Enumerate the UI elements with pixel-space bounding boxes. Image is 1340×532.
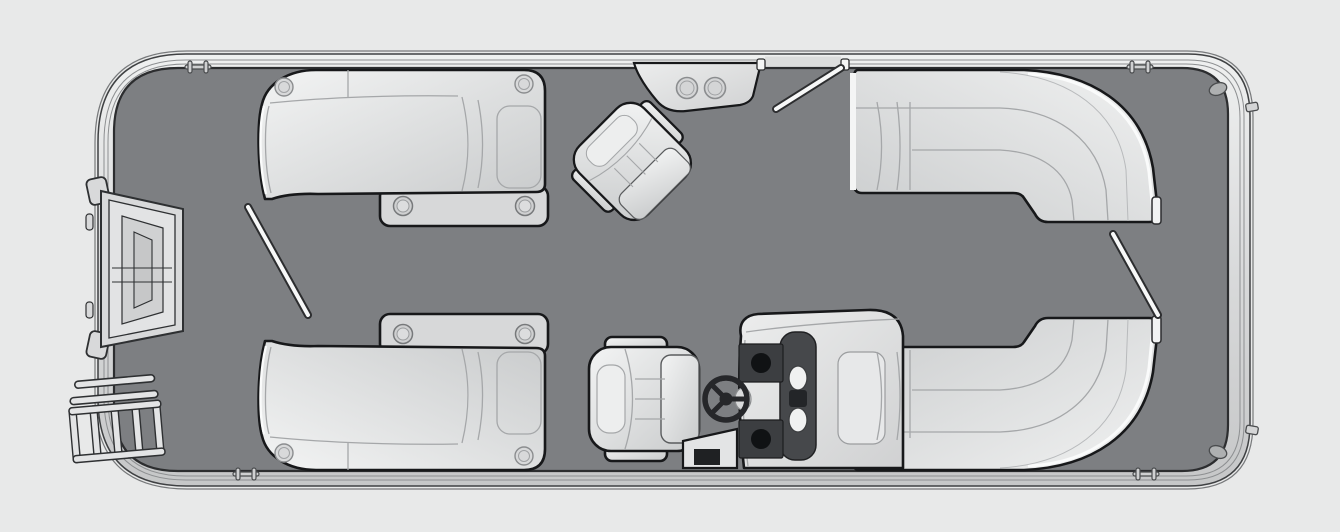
- cupholder: [275, 78, 293, 96]
- cupholder-inner: [519, 200, 531, 212]
- pontoon-floorplan-diagram: [0, 0, 1340, 532]
- helm-step-storage: [694, 449, 720, 465]
- lounge-cushion: [259, 70, 545, 199]
- gate-end-cap: [1152, 197, 1161, 224]
- gauge-round-bottom: [751, 429, 771, 449]
- transom-tab: [1245, 425, 1258, 435]
- gauge-round-top: [751, 353, 771, 373]
- gate-end-cap: [757, 59, 765, 70]
- floorplan-canvas: [0, 0, 1340, 532]
- wheel-hub: [720, 393, 733, 406]
- gauge-white-top: [789, 366, 807, 390]
- cupholder-inner: [397, 200, 409, 212]
- gauge-white-bottom: [789, 408, 807, 432]
- transom-tab: [1245, 102, 1258, 112]
- gate-rail-gap: [765, 57, 841, 67]
- wraparound-edge-highlight: [850, 73, 856, 190]
- console-back-pad: [838, 352, 885, 444]
- ramp-tread-panel: [134, 232, 152, 308]
- helm-display: [789, 390, 807, 407]
- bow-hinge-tab-top: [86, 214, 93, 230]
- bow-hinge-tab-bottom: [86, 302, 93, 318]
- cupholder: [515, 75, 533, 93]
